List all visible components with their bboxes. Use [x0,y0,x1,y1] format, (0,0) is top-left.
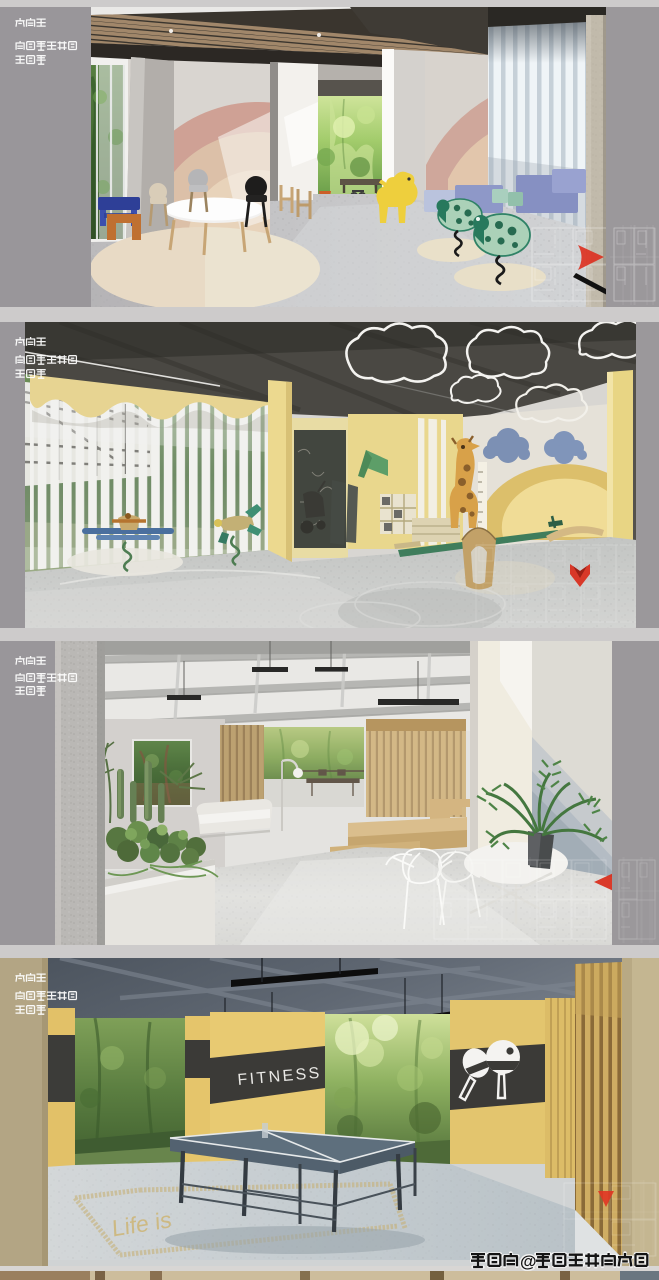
svg-text:@: @ [520,1252,537,1271]
